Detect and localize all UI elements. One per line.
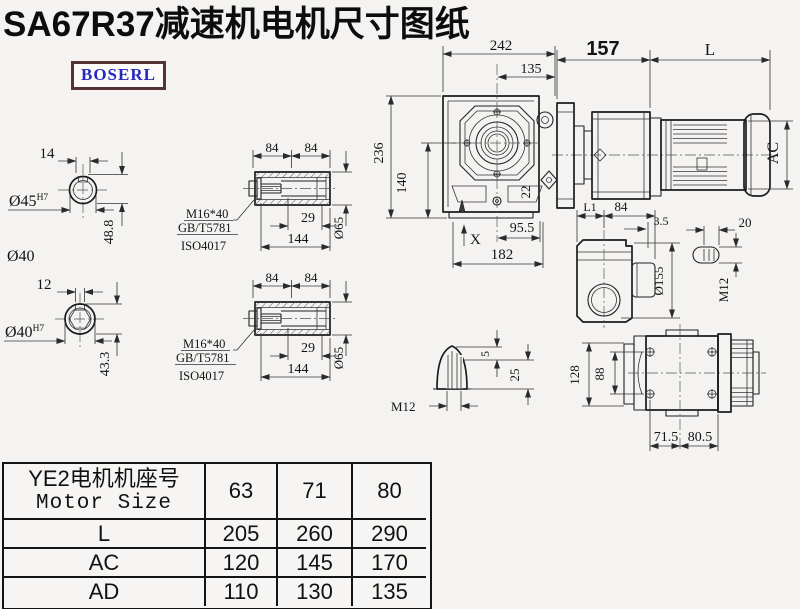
shaft-bore-view-2: 12 Ø40H7 43.3 bbox=[4, 277, 122, 376]
dim-label: 12 bbox=[37, 277, 52, 293]
table-header-en: Motor Size bbox=[36, 492, 172, 516]
table-header-motor-size: YE2电机机座号 Motor Size bbox=[4, 464, 206, 520]
dim-label: 43.3 bbox=[98, 352, 113, 377]
dim-label: AC bbox=[765, 142, 782, 164]
dim-label: 84 bbox=[305, 140, 319, 155]
dim-label: 84 bbox=[266, 140, 280, 155]
table-row-label-AD: AD bbox=[4, 578, 206, 606]
gearbox-side-view: L1 84 3.5 Ø155 20 bbox=[577, 199, 752, 328]
dim-label: L1 bbox=[583, 200, 596, 214]
table-cell: 290 bbox=[353, 520, 426, 549]
hollow-shaft-section-2: 84 84 M16*40 GB/T5781 ISO4017 bbox=[175, 270, 352, 383]
thread-label: M12 bbox=[716, 278, 731, 303]
standard-label: GB/T5781 bbox=[178, 221, 231, 235]
dim-label: 144 bbox=[288, 232, 309, 247]
table-col-71: 71 bbox=[278, 464, 353, 520]
dim-label: X bbox=[470, 232, 481, 248]
dim-label: Ø40 bbox=[7, 248, 35, 265]
shaft-bore-view-1: 14 Ø45H7 48.8 Ø40 bbox=[7, 146, 128, 265]
drawing-sheet: SA67R37减速机电机尺寸图纸 BOSERL 14 bbox=[0, 0, 800, 609]
table-row-label-L: L bbox=[4, 520, 206, 549]
dim-label: 157 bbox=[586, 38, 619, 60]
dim-label: 182 bbox=[491, 247, 514, 263]
hollow-shaft-section-1: 84 84 M16*40 GB/T5781 ISO4017 bbox=[177, 140, 352, 253]
bolt-spec-label: M16*40 bbox=[183, 337, 225, 351]
dim-label: 29 bbox=[301, 211, 315, 226]
plug-detail-view: 5 25 M12 bbox=[391, 330, 534, 414]
standard-label: ISO4017 bbox=[179, 369, 224, 383]
dim-label: Ø65 bbox=[331, 217, 346, 239]
dim-label: 25 bbox=[507, 369, 522, 382]
dim-label: 128 bbox=[567, 365, 582, 385]
dim-label: 5 bbox=[478, 351, 492, 357]
bolt-spec-label: M16*40 bbox=[186, 207, 228, 221]
table-cell: 110 bbox=[206, 578, 278, 606]
dim-label: 84 bbox=[305, 270, 319, 285]
dim-label: 144 bbox=[288, 362, 309, 377]
dim-label: L bbox=[705, 40, 715, 59]
table-col-63: 63 bbox=[206, 464, 278, 520]
dim-label: 14 bbox=[40, 146, 56, 162]
dim-label: Ø45H7 bbox=[9, 193, 48, 210]
table-cell: 205 bbox=[206, 520, 278, 549]
bottom-mounting-view: 128 88 71.5 80.5 bbox=[567, 324, 766, 452]
dim-label: 3.5 bbox=[654, 214, 669, 228]
dim-label: 71.5 bbox=[654, 430, 679, 445]
dim-label: 22 bbox=[518, 186, 533, 199]
dim-label: Ø65 bbox=[331, 347, 346, 369]
table-cell: 135 bbox=[353, 578, 426, 606]
table-row-label-AC: AC bbox=[4, 549, 206, 578]
gearbox-front-view: 22 242 135 236 140 X 95.5 bbox=[372, 38, 557, 268]
dim-label: 84 bbox=[266, 270, 280, 285]
dim-label: 140 bbox=[395, 173, 410, 194]
table-col-80: 80 bbox=[353, 464, 426, 520]
dim-label: 88 bbox=[592, 368, 607, 381]
standard-label: ISO4017 bbox=[181, 239, 226, 253]
table-cell: 130 bbox=[278, 578, 353, 606]
table-header-cn: YE2电机机座号 bbox=[28, 466, 180, 491]
dim-label: 29 bbox=[301, 341, 315, 356]
dim-label: 236 bbox=[372, 143, 387, 164]
dim-label: 80.5 bbox=[688, 430, 713, 445]
table-cell: 170 bbox=[353, 549, 426, 578]
table-cell: 260 bbox=[278, 520, 353, 549]
table-cell: 145 bbox=[278, 549, 353, 578]
table-cell: 120 bbox=[206, 549, 278, 578]
standard-label: GB/T5781 bbox=[176, 351, 229, 365]
dim-label: 20 bbox=[739, 215, 752, 230]
dim-label: Ø155 bbox=[651, 267, 666, 296]
dim-label: Ø40H7 bbox=[5, 324, 44, 341]
motor-size-table: YE2电机机座号 Motor Size 63 71 80 L 205 260 2… bbox=[2, 462, 432, 609]
dim-label: 135 bbox=[521, 62, 542, 77]
dim-label: 95.5 bbox=[510, 221, 535, 236]
motor-side-view: 157 L AC bbox=[552, 38, 793, 208]
thread-label: M12 bbox=[391, 399, 416, 414]
dim-label: 48.8 bbox=[102, 220, 117, 245]
dim-label: 242 bbox=[490, 38, 513, 54]
dim-label: 84 bbox=[615, 199, 629, 214]
